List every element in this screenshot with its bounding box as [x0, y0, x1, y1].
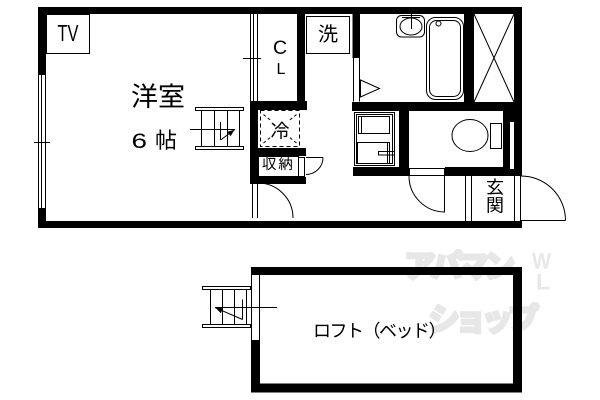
svg-text:6: 6: [132, 130, 148, 153]
svg-text:L: L: [536, 270, 551, 295]
svg-text:C: C: [273, 37, 287, 59]
svg-text:L: L: [277, 61, 286, 78]
svg-text:TV: TV: [58, 20, 79, 46]
